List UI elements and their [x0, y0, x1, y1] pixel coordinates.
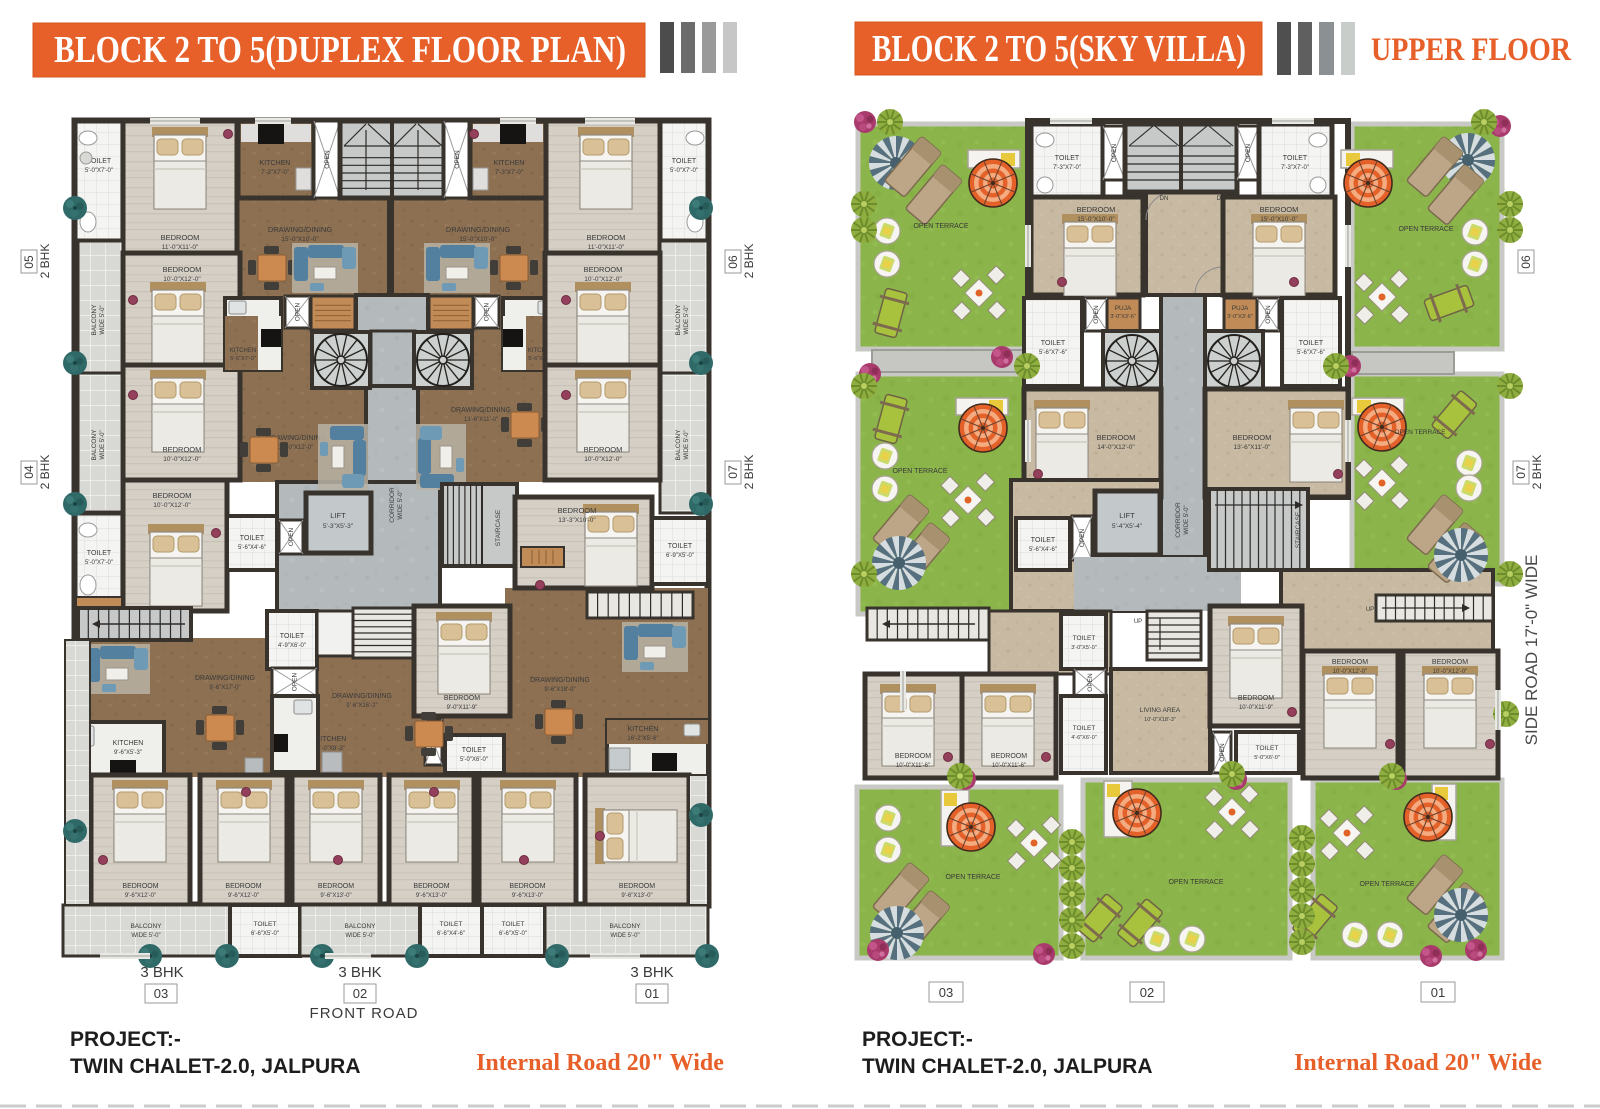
svg-text:OPEN: OPEN: [454, 150, 461, 169]
svg-text:UP: UP: [1134, 619, 1142, 625]
svg-text:9'-6"X18'-0": 9'-6"X18'-0": [544, 687, 575, 693]
svg-text:WIDE 5'-0": WIDE 5'-0": [345, 933, 374, 939]
svg-text:BEDROOM: BEDROOM: [1332, 659, 1368, 666]
svg-text:TWIN CHALET-2.0, JALPURA: TWIN CHALET-2.0, JALPURA: [70, 1055, 361, 1078]
svg-text:6'-6"X5'-0": 6'-6"X5'-0": [499, 931, 527, 937]
svg-text:SIDE ROAD 17'-0" WIDE: SIDE ROAD 17'-0" WIDE: [1522, 555, 1541, 746]
svg-text:BEDROOM: BEDROOM: [509, 883, 545, 890]
svg-text:9'-6"X12'-0": 9'-6"X12'-0": [125, 893, 156, 899]
svg-text:DRAWING/DINING: DRAWING/DINING: [332, 693, 392, 700]
svg-text:9'-6"X13'-0": 9'-6"X13'-0": [621, 893, 652, 899]
svg-text:7'-3"X7'-0": 7'-3"X7'-0": [261, 170, 289, 176]
svg-text:06: 06: [726, 255, 740, 269]
svg-text:BEDROOM: BEDROOM: [991, 753, 1027, 760]
svg-text:STAIRCASE: STAIRCASE: [495, 509, 502, 546]
svg-text:16'-2"X5'-6": 16'-2"X5'-6": [627, 736, 658, 742]
svg-text:BALCONY: BALCONY: [130, 923, 162, 930]
svg-text:TOILET: TOILET: [1031, 537, 1056, 544]
svg-text:04: 04: [22, 465, 36, 479]
svg-text:06: 06: [1519, 255, 1533, 269]
svg-text:07: 07: [726, 465, 740, 479]
svg-text:TOILET: TOILET: [240, 535, 265, 542]
svg-text:5'-6"X7'-6": 5'-6"X7'-6": [1039, 350, 1067, 356]
svg-text:KITCHEN: KITCHEN: [260, 160, 291, 167]
svg-text:2 BHK: 2 BHK: [1530, 455, 1544, 490]
svg-text:5'-4"X5'-4": 5'-4"X5'-4": [1112, 523, 1143, 530]
svg-text:OPEN TERRACE: OPEN TERRACE: [1168, 879, 1223, 886]
svg-text:7'-3"X7'-0": 7'-3"X7'-0": [1053, 165, 1081, 171]
svg-text:6'-6"X4'-6": 6'-6"X4'-6": [437, 931, 465, 937]
svg-text:01: 01: [1431, 985, 1445, 1000]
svg-text:5'-0"X8'-3": 5'-0"X8'-3": [317, 746, 345, 752]
svg-text:3'-0"X5'-0": 3'-0"X5'-0": [1071, 645, 1097, 651]
svg-text:OPEN: OPEN: [1245, 143, 1252, 162]
svg-text:9'-6"X13'-0": 9'-6"X13'-0": [416, 893, 447, 899]
svg-text:2 BHK: 2 BHK: [742, 244, 756, 279]
svg-text:BEDROOM: BEDROOM: [225, 883, 261, 890]
svg-text:10'-0"X12'-0": 10'-0"X12'-0": [584, 276, 622, 283]
svg-text:10'-0"X11'-6": 10'-0"X11'-6": [896, 763, 930, 769]
svg-text:DN: DN: [1160, 196, 1169, 202]
svg-text:9'-6"X16'-3": 9'-6"X16'-3": [346, 703, 377, 709]
svg-text:9'-6"X12'-0": 9'-6"X12'-0": [228, 893, 259, 899]
svg-text:OPEN: OPEN: [324, 150, 331, 169]
svg-text:PUJA: PUJA: [1232, 305, 1249, 312]
svg-text:BALCONY: BALCONY: [675, 304, 682, 336]
svg-text:3 BHK: 3 BHK: [630, 964, 673, 981]
svg-text:OPEN: OPEN: [1093, 305, 1100, 324]
svg-text:02: 02: [353, 986, 367, 1001]
svg-text:TOILET: TOILET: [1055, 155, 1080, 162]
svg-text:4'-6"X6'-0": 4'-6"X6'-0": [1071, 735, 1097, 741]
svg-text:15'-0"X10'-0": 15'-0"X10'-0": [1260, 216, 1298, 223]
svg-text:10'-0"X12'-0": 10'-0"X12'-0": [163, 456, 201, 463]
svg-text:FRONT ROAD: FRONT ROAD: [310, 1005, 419, 1022]
svg-text:7'-3"X7'-0": 7'-3"X7'-0": [1281, 165, 1309, 171]
svg-text:10'-0"X12'-0": 10'-0"X12'-0": [163, 276, 201, 283]
svg-text:TOILET: TOILET: [462, 747, 487, 754]
svg-text:OPEN TERRACE: OPEN TERRACE: [1398, 226, 1453, 233]
svg-text:UPPER FLOOR: UPPER FLOOR: [1371, 32, 1572, 68]
svg-text:9'-6"X17'-0": 9'-6"X17'-0": [209, 685, 240, 691]
svg-text:10'-0"X11'-9": 10'-0"X11'-9": [1239, 705, 1273, 711]
svg-text:03: 03: [939, 985, 953, 1000]
svg-text:BEDROOM: BEDROOM: [1260, 205, 1299, 214]
svg-text:TOILET: TOILET: [1073, 725, 1096, 732]
svg-text:Internal Road 20" Wide: Internal Road 20" Wide: [476, 1050, 724, 1076]
svg-text:OPEN TERRACE: OPEN TERRACE: [1394, 429, 1446, 436]
svg-text:Internal Road 20" Wide: Internal Road 20" Wide: [1294, 1050, 1542, 1076]
svg-text:9'-0"X11'-9": 9'-0"X11'-9": [447, 705, 478, 711]
svg-text:5'-6"X7'-0": 5'-6"X7'-0": [230, 356, 256, 362]
svg-text:05: 05: [22, 255, 36, 269]
svg-text:TWIN CHALET-2.0, JALPURA: TWIN CHALET-2.0, JALPURA: [862, 1055, 1153, 1078]
svg-text:OPEN: OPEN: [1079, 528, 1086, 547]
svg-text:OPEN TERRACE: OPEN TERRACE: [945, 874, 1000, 881]
svg-text:9'-6"X13'-0": 9'-6"X13'-0": [320, 893, 351, 899]
svg-text:BEDROOM: BEDROOM: [1432, 659, 1468, 666]
svg-text:4'-9"X6'-0": 4'-9"X6'-0": [278, 643, 306, 649]
svg-text:CORRIDOR: CORRIDOR: [1175, 502, 1182, 538]
svg-text:LIFT: LIFT: [1119, 511, 1135, 520]
svg-text:BEDROOM: BEDROOM: [1097, 433, 1136, 442]
svg-text:5'-0"X6'-0": 5'-0"X6'-0": [1254, 755, 1280, 761]
svg-text:DRAWING/DINING: DRAWING/DINING: [530, 677, 590, 684]
svg-text:UP: UP: [1366, 607, 1374, 613]
svg-text:TOILET: TOILET: [1073, 635, 1096, 642]
svg-text:PROJECT:-: PROJECT:-: [70, 1028, 181, 1051]
svg-text:6'-9"X5'-0": 6'-9"X5'-0": [666, 553, 694, 559]
svg-text:WIDE 5'-0": WIDE 5'-0": [131, 933, 160, 939]
svg-text:BEDROOM: BEDROOM: [153, 491, 192, 500]
svg-text:10'-0"X12'-0": 10'-0"X12'-0": [1433, 669, 1468, 675]
svg-text:WIDE 5'-0": WIDE 5'-0": [398, 490, 404, 519]
svg-text:15'-0"X10'-0": 15'-0"X10'-0": [1077, 216, 1115, 223]
svg-text:BALCONY: BALCONY: [609, 923, 641, 930]
svg-text:TOILET: TOILET: [254, 921, 277, 928]
svg-text:5'-6"X4'-6": 5'-6"X4'-6": [1029, 547, 1057, 553]
svg-text:5'-6"X4'-6": 5'-6"X4'-6": [238, 545, 266, 551]
svg-text:3'-0"X3'-6": 3'-0"X3'-6": [1227, 314, 1253, 320]
svg-text:TOILET: TOILET: [440, 921, 463, 928]
svg-text:07: 07: [1514, 465, 1528, 479]
svg-text:9'-6"X13'-0": 9'-6"X13'-0": [512, 893, 543, 899]
svg-text:BEDROOM: BEDROOM: [163, 445, 202, 454]
svg-text:BALCONY: BALCONY: [91, 429, 98, 461]
svg-text:WIDE 5'-0": WIDE 5'-0": [100, 305, 106, 334]
svg-text:5'-3"X5'-3": 5'-3"X5'-3": [323, 523, 354, 530]
svg-text:BALCONY: BALCONY: [344, 923, 376, 930]
svg-text:BEDROOM: BEDROOM: [444, 695, 480, 702]
svg-text:KITCHEN: KITCHEN: [113, 740, 144, 747]
svg-text:5'-0"X7'-0": 5'-0"X7'-0": [85, 560, 113, 566]
svg-text:BEDROOM: BEDROOM: [1077, 205, 1116, 214]
svg-text:3 BHK: 3 BHK: [338, 964, 381, 981]
svg-text:OPEN: OPEN: [288, 527, 295, 546]
svg-text:BLOCK 2 TO 5(DUPLEX FLOOR PLAN: BLOCK 2 TO 5(DUPLEX FLOOR PLAN): [54, 29, 626, 71]
svg-text:WIDE 5'-0": WIDE 5'-0": [610, 933, 639, 939]
svg-text:PROJECT:-: PROJECT:-: [862, 1028, 973, 1051]
svg-text:2 BHK: 2 BHK: [38, 455, 52, 490]
svg-text:2 BHK: 2 BHK: [38, 244, 52, 279]
svg-text:KITCHEN: KITCHEN: [628, 726, 659, 733]
svg-text:TOILET: TOILET: [1256, 745, 1279, 752]
svg-text:BALCONY: BALCONY: [91, 304, 98, 336]
svg-text:9'-6"X5'-3": 9'-6"X5'-3": [114, 750, 142, 756]
svg-text:OPEN: OPEN: [292, 672, 299, 691]
svg-text:WIDE 5'-0": WIDE 5'-0": [1184, 505, 1190, 534]
svg-text:3 BHK: 3 BHK: [140, 964, 183, 981]
svg-text:OPEN: OPEN: [1265, 305, 1272, 324]
svg-text:10'-0"X12'-0": 10'-0"X12'-0": [153, 502, 191, 509]
svg-text:13'-3"X10'-0": 13'-3"X10'-0": [558, 517, 596, 524]
svg-text:OPEN: OPEN: [295, 302, 302, 321]
svg-text:OPEN: OPEN: [1219, 743, 1226, 762]
svg-text:BEDROOM: BEDROOM: [558, 506, 597, 515]
svg-text:OPEN: OPEN: [1087, 673, 1094, 692]
svg-text:OPEN: OPEN: [1111, 143, 1118, 162]
svg-text:03: 03: [154, 986, 168, 1001]
svg-text:OPEN: OPEN: [484, 302, 491, 321]
svg-text:TOILET: TOILET: [87, 550, 112, 557]
svg-text:BEDROOM: BEDROOM: [122, 883, 158, 890]
svg-text:DRAWING/DINING: DRAWING/DINING: [451, 407, 511, 414]
svg-text:01: 01: [645, 986, 659, 1001]
svg-text:7'-3"X7'-0": 7'-3"X7'-0": [495, 170, 523, 176]
svg-text:11'-0"X11'-0": 11'-0"X11'-0": [162, 244, 199, 251]
svg-text:6'-6"X5'-0": 6'-6"X5'-0": [251, 931, 279, 937]
svg-text:3'-0"X3'-6": 3'-0"X3'-6": [1110, 314, 1136, 320]
svg-text:5'-0"X7'-0": 5'-0"X7'-0": [670, 168, 698, 174]
svg-text:CORRIDOR: CORRIDOR: [389, 487, 396, 523]
svg-text:WIDE 5'-0": WIDE 5'-0": [684, 430, 690, 459]
svg-text:10'-0"X12'-0": 10'-0"X12'-0": [1333, 669, 1368, 675]
svg-text:BEDROOM: BEDROOM: [1238, 695, 1274, 702]
svg-text:BEDROOM: BEDROOM: [1233, 433, 1272, 442]
svg-text:BEDROOM: BEDROOM: [413, 883, 449, 890]
svg-text:TOILET: TOILET: [668, 543, 693, 550]
svg-text:BEDROOM: BEDROOM: [587, 233, 626, 242]
svg-text:BALCONY: BALCONY: [675, 429, 682, 461]
svg-text:BEDROOM: BEDROOM: [161, 233, 200, 242]
svg-text:BEDROOM: BEDROOM: [584, 445, 623, 454]
svg-text:OPEN TERRACE: OPEN TERRACE: [913, 223, 968, 230]
svg-text:DRAWING/DINING: DRAWING/DINING: [446, 225, 510, 234]
svg-text:BLOCK 2 TO 5(SKY VILLA): BLOCK 2 TO 5(SKY VILLA): [872, 28, 1246, 70]
svg-text:15'-0"X10'-0": 15'-0"X10'-0": [459, 236, 497, 243]
svg-text:02: 02: [1140, 985, 1154, 1000]
svg-text:WIDE 5'-0": WIDE 5'-0": [684, 305, 690, 334]
svg-text:OPEN TERRACE: OPEN TERRACE: [1359, 881, 1414, 888]
svg-text:10'-0"X18'-3": 10'-0"X18'-3": [1144, 717, 1176, 723]
svg-text:5'-6"X7'-6": 5'-6"X7'-6": [1297, 350, 1325, 356]
svg-text:10'-0"X11'-6": 10'-0"X11'-6": [992, 763, 1026, 769]
svg-text:KITCHEN: KITCHEN: [316, 736, 347, 743]
svg-text:14'-0"X12'-0": 14'-0"X12'-0": [1097, 444, 1135, 451]
svg-text:TOILET: TOILET: [672, 158, 697, 165]
svg-text:DRAWING/DINING: DRAWING/DINING: [268, 225, 332, 234]
svg-text:TOILET: TOILET: [1283, 155, 1308, 162]
svg-text:KITCHEN: KITCHEN: [230, 348, 256, 354]
svg-text:LIFT: LIFT: [330, 511, 346, 520]
svg-text:BEDROOM: BEDROOM: [163, 265, 202, 274]
svg-text:PUJA: PUJA: [1115, 305, 1132, 312]
svg-text:WIDE 5'-0": WIDE 5'-0": [100, 430, 106, 459]
svg-text:5'-0"X6'-0": 5'-0"X6'-0": [460, 757, 488, 763]
svg-text:LIVING AREA: LIVING AREA: [1140, 707, 1181, 714]
svg-text:BEDROOM: BEDROOM: [318, 883, 354, 890]
svg-text:11'-0"X11'-0": 11'-0"X11'-0": [588, 244, 625, 251]
svg-text:10'-0"X12'-0": 10'-0"X12'-0": [584, 456, 622, 463]
svg-text:TOILET: TOILET: [280, 633, 305, 640]
svg-text:KITCHEN: KITCHEN: [494, 160, 525, 167]
svg-text:TOILET: TOILET: [1041, 340, 1066, 347]
svg-text:13'-6"X11'-0": 13'-6"X11'-0": [464, 417, 498, 423]
svg-text:15'-0"X10'-0": 15'-0"X10'-0": [281, 236, 319, 243]
svg-text:13'-6"X11'-0": 13'-6"X11'-0": [1234, 444, 1272, 451]
svg-text:TOILET: TOILET: [502, 921, 525, 928]
svg-text:OPEN TERRACE: OPEN TERRACE: [892, 468, 947, 475]
svg-text:BEDROOM: BEDROOM: [584, 265, 623, 274]
svg-text:STAIRCASE: STAIRCASE: [1295, 511, 1302, 548]
svg-text:5'-0"X7'-0": 5'-0"X7'-0": [85, 168, 113, 174]
svg-text:DRAWING/DINING: DRAWING/DINING: [195, 675, 255, 682]
svg-text:TOILET: TOILET: [1299, 340, 1324, 347]
svg-text:BEDROOM: BEDROOM: [619, 883, 655, 890]
svg-text:2 BHK: 2 BHK: [742, 455, 756, 490]
svg-text:BEDROOM: BEDROOM: [895, 753, 931, 760]
